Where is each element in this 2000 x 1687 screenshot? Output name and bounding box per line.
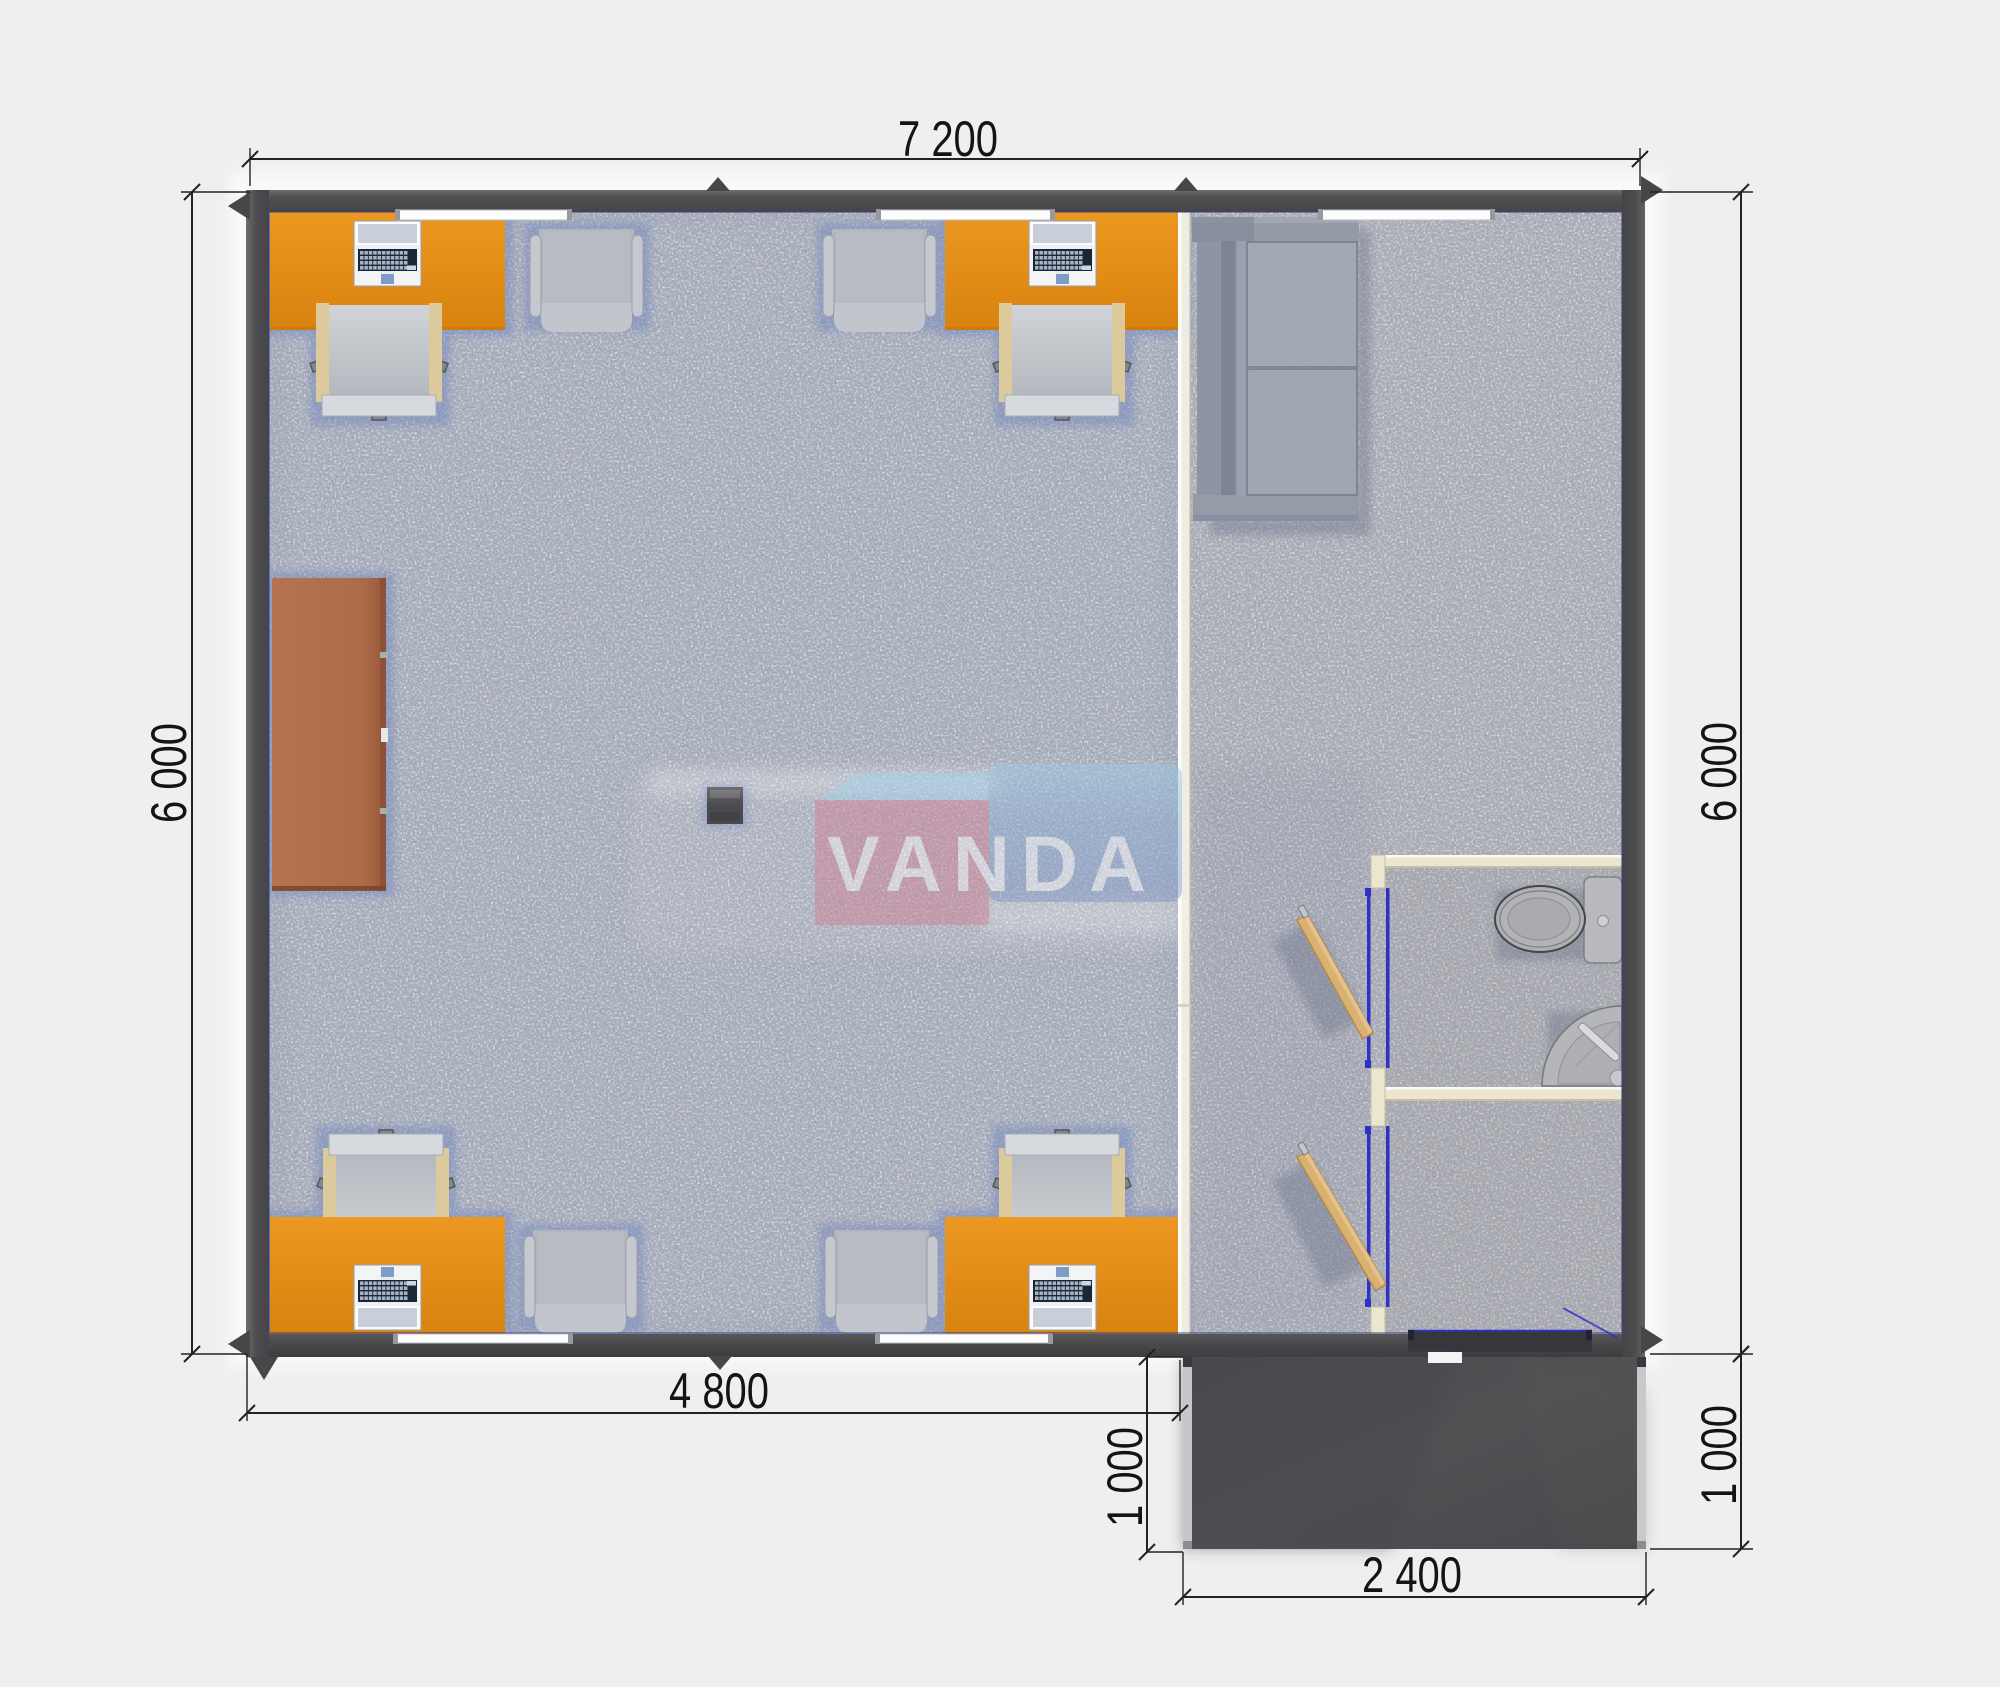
svg-text:1 000: 1 000 [1097,1427,1153,1527]
svg-text:4 800: 4 800 [669,1363,769,1419]
svg-text:1 000: 1 000 [1691,1405,1747,1505]
svg-text:VANDA: VANDA [827,819,1157,908]
svg-text:6 000: 6 000 [141,723,197,823]
svg-text:7 200: 7 200 [898,111,998,167]
svg-text:2 400: 2 400 [1362,1547,1462,1603]
svg-text:6 000: 6 000 [1691,722,1747,822]
